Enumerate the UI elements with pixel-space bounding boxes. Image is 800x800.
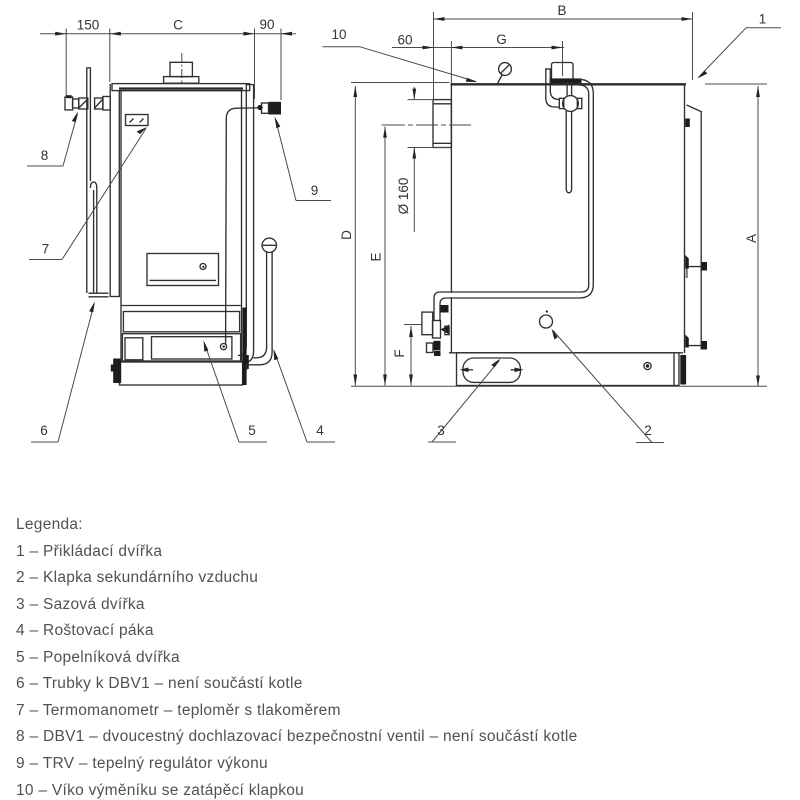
- svg-text:G: G: [496, 32, 507, 47]
- svg-text:C: C: [173, 18, 183, 33]
- svg-text:6: 6: [40, 423, 48, 438]
- svg-text:9: 9: [311, 183, 319, 198]
- svg-text:D: D: [339, 230, 354, 240]
- svg-text:1: 1: [759, 12, 767, 27]
- svg-text:90: 90: [259, 17, 274, 32]
- svg-text:E: E: [369, 252, 384, 261]
- svg-text:10: 10: [331, 27, 346, 42]
- svg-text:2: 2: [644, 423, 652, 438]
- svg-text:150: 150: [77, 18, 100, 33]
- svg-text:A: A: [744, 234, 759, 243]
- svg-text:8: 8: [41, 148, 49, 163]
- svg-text:4: 4: [316, 423, 324, 438]
- svg-text:3: 3: [437, 423, 445, 438]
- svg-text:B: B: [557, 3, 566, 18]
- svg-text:7: 7: [42, 242, 50, 257]
- svg-text:F: F: [392, 349, 407, 357]
- svg-text:Ø 160: Ø 160: [396, 178, 411, 215]
- svg-text:60: 60: [397, 33, 412, 48]
- svg-text:5: 5: [248, 423, 256, 438]
